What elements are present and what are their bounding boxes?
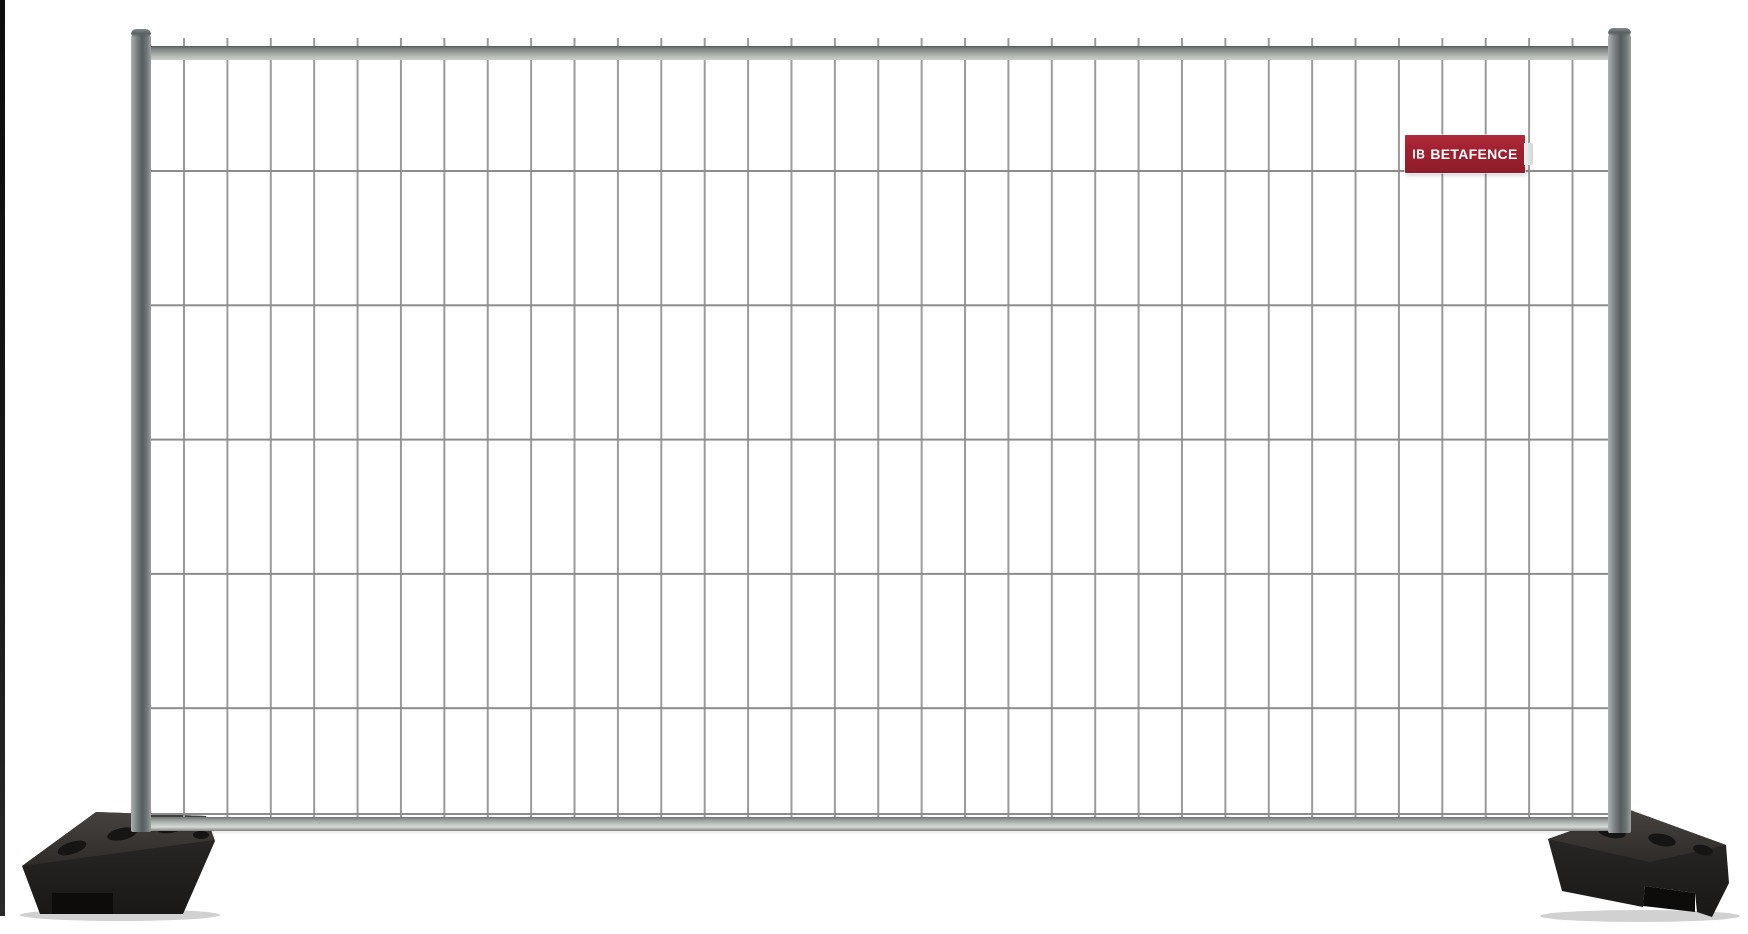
left-foot-recess [193,831,209,839]
fence-mesh-bottom-edge-wire [150,813,1608,815]
betafence-logo-icon: IB [1412,147,1425,160]
fence-mesh-horizontal-wires [150,170,1608,712]
right-upright-tube [1608,28,1631,833]
betafence-brand-text: BETAFENCE [1430,147,1517,161]
plate-mounting-clip [1524,143,1533,165]
bottom-rail [140,817,1617,831]
left-upright-tube [131,29,151,832]
top-rail [142,46,1618,60]
betafence-brand-plate: IB BETAFENCE [1405,135,1525,173]
temporary-fence-product-photo: IB BETAFENCE [0,0,1748,934]
left-foot-notch [52,893,113,914]
